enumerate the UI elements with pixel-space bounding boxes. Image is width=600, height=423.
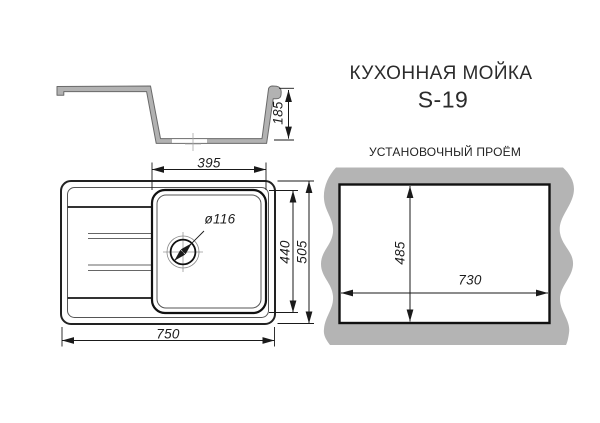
cutout-rectangle <box>340 185 550 324</box>
sink-profile-shape <box>57 86 281 143</box>
cutout-section-title: УСТАНОВОЧНЫЙ ПРОЁМ <box>369 145 521 159</box>
dim-label-395: 395 <box>197 156 220 171</box>
dim-label-185: 185 <box>271 101 286 124</box>
dim-label-730: 730 <box>458 273 481 288</box>
model-number: S-19 <box>418 87 469 114</box>
drawing-title: КУХОННАЯ МОЙКА <box>350 63 533 85</box>
dim-label-505: 505 <box>295 240 310 263</box>
drain-gap <box>172 139 207 143</box>
sink-spec-drawing: КУХОННАЯ МОЙКА S-19 УСТАНОВОЧНЫЙ ПРОЁМ 1… <box>0 0 600 423</box>
installation-cutout-view <box>321 168 574 346</box>
dim-label-drain-diameter: ø116 <box>205 212 236 227</box>
side-view-cross-section <box>57 86 294 151</box>
dim-label-440: 440 <box>278 240 293 263</box>
bowl-outer-edge <box>152 190 266 313</box>
dim-label-485: 485 <box>393 241 408 264</box>
dim-label-750: 750 <box>156 327 179 342</box>
top-view <box>61 163 314 347</box>
